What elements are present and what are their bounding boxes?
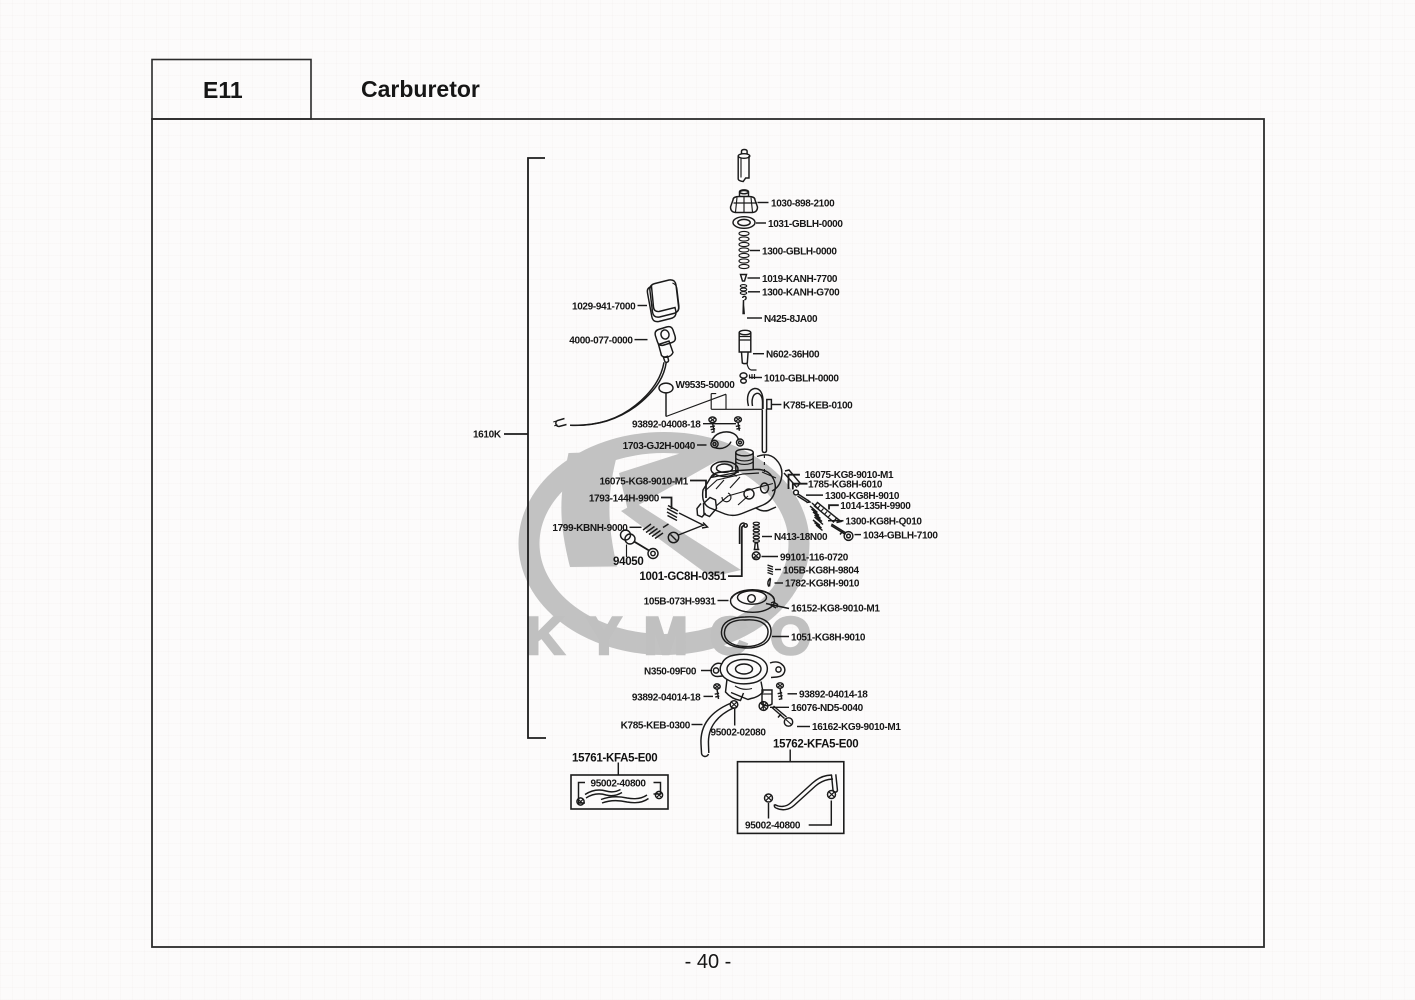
svg-text:15761-KFA5-E00: 15761-KFA5-E00 — [572, 753, 657, 765]
svg-text:93892-04014-18: 93892-04014-18 — [632, 692, 701, 703]
svg-text:1610K: 1610K — [473, 430, 502, 441]
svg-text:1799-KBNH-9000: 1799-KBNH-9000 — [552, 523, 628, 534]
svg-text:1001-GC8H-0351: 1001-GC8H-0351 — [639, 571, 726, 583]
svg-text:105B-KG8H-9804: 105B-KG8H-9804 — [783, 566, 859, 577]
svg-text:1300-GBLH-0000: 1300-GBLH-0000 — [762, 246, 837, 257]
svg-text:E11: E11 — [203, 77, 243, 103]
svg-text:93892-04008-18: 93892-04008-18 — [632, 420, 701, 431]
svg-text:16076-ND5-0040: 16076-ND5-0040 — [791, 703, 864, 714]
svg-text:W9535-50000: W9535-50000 — [676, 380, 736, 391]
svg-text:1793-144H-9900: 1793-144H-9900 — [589, 493, 660, 504]
svg-text:95002-40800: 95002-40800 — [745, 821, 801, 832]
svg-text:1785-KG8H-6010: 1785-KG8H-6010 — [808, 480, 883, 491]
svg-text:N413-18N00: N413-18N00 — [774, 532, 828, 543]
svg-text:105B-073H-9931: 105B-073H-9931 — [644, 596, 717, 607]
svg-text:4000-077-0000: 4000-077-0000 — [569, 335, 633, 346]
svg-text:16152-KG8-9010-M1: 16152-KG8-9010-M1 — [791, 604, 880, 615]
svg-text:1034-GBLH-7100: 1034-GBLH-7100 — [863, 531, 938, 542]
svg-text:16162-KG9-9010-M1: 16162-KG9-9010-M1 — [812, 722, 901, 733]
svg-text:N425-8JA00: N425-8JA00 — [764, 314, 818, 325]
svg-text:95002-40800: 95002-40800 — [591, 779, 647, 790]
svg-text:1031-GBLH-0000: 1031-GBLH-0000 — [768, 219, 843, 230]
svg-text:94050: 94050 — [613, 556, 643, 568]
svg-text:1029-941-7000: 1029-941-7000 — [572, 301, 636, 312]
svg-text:95002-02080: 95002-02080 — [711, 728, 767, 739]
svg-text:1051-KG8H-9010: 1051-KG8H-9010 — [791, 632, 866, 643]
svg-text:15762-KFA5-E00: 15762-KFA5-E00 — [773, 739, 858, 751]
svg-text:1019-KANH-7700: 1019-KANH-7700 — [762, 274, 838, 285]
svg-text:N350-09F00: N350-09F00 — [644, 667, 697, 678]
svg-text:N602-36H00: N602-36H00 — [766, 350, 820, 361]
svg-text:1782-KG8H-9010: 1782-KG8H-9010 — [785, 579, 860, 590]
svg-text:K785-KEB-0300: K785-KEB-0300 — [621, 720, 691, 731]
svg-text:K785-KEB-0100: K785-KEB-0100 — [783, 401, 853, 412]
svg-text:16075-KG8-9010-M1: 16075-KG8-9010-M1 — [599, 476, 688, 487]
svg-text:1014-135H-9900: 1014-135H-9900 — [840, 501, 911, 512]
svg-text:93892-04014-18: 93892-04014-18 — [799, 689, 868, 700]
svg-text:1030-898-2100: 1030-898-2100 — [771, 198, 835, 209]
svg-text:1300-KG8H-Q010: 1300-KG8H-Q010 — [845, 516, 922, 527]
svg-text:- 40 -: - 40 - — [685, 951, 732, 973]
svg-text:1010-GBLH-0000: 1010-GBLH-0000 — [764, 373, 839, 384]
svg-text:1300-KANH-G700: 1300-KANH-G700 — [762, 288, 840, 299]
svg-text:Carburetor: Carburetor — [361, 76, 480, 102]
svg-text:99101-116-0720: 99101-116-0720 — [780, 553, 849, 564]
svg-text:1703-GJ2H-0040: 1703-GJ2H-0040 — [623, 441, 696, 452]
